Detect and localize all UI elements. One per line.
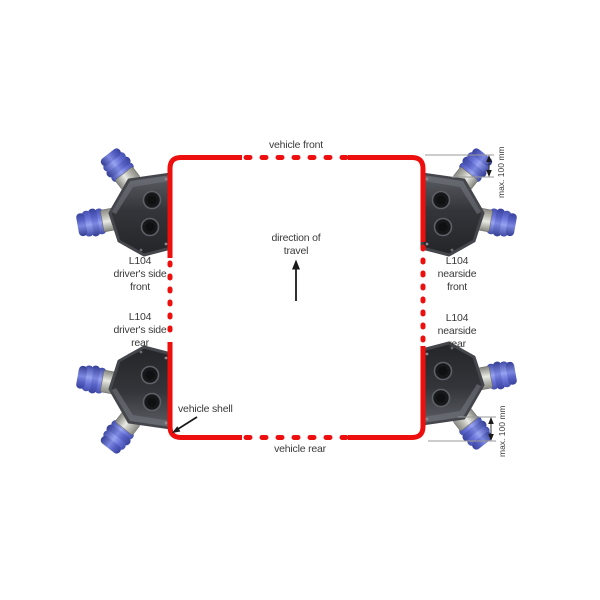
sensor-label-nearside-rear: L104 nearside rear bbox=[412, 312, 502, 351]
sensor-drivers-side-front bbox=[75, 145, 171, 255]
vehicle-shell-label: vehicle shell bbox=[178, 403, 258, 416]
vehicle-shell-arrow bbox=[172, 417, 197, 433]
max-distance-label-top: max. 100 mm bbox=[496, 147, 506, 199]
direction-of-travel-arrow bbox=[292, 260, 300, 302]
max-distance-label-bottom: max. 100 mm bbox=[497, 406, 507, 458]
sensor-label-nearside-front: L104 nearside front bbox=[412, 255, 502, 294]
direction-of-travel-label: direction of travel bbox=[246, 232, 346, 258]
diagram-canvas: vehicle front vehicle rear direction of … bbox=[0, 0, 600, 600]
sensor-label-drivers-side-front: L104 driver's side front bbox=[95, 255, 185, 294]
vehicle-rear-label: vehicle rear bbox=[230, 443, 370, 456]
sensor-drivers-side-rear bbox=[75, 347, 171, 457]
sensor-label-drivers-side-rear: L104 driver's side rear bbox=[95, 311, 185, 350]
vehicle-sensor-diagram bbox=[0, 0, 600, 600]
vehicle-front-label: vehicle front bbox=[226, 139, 366, 152]
